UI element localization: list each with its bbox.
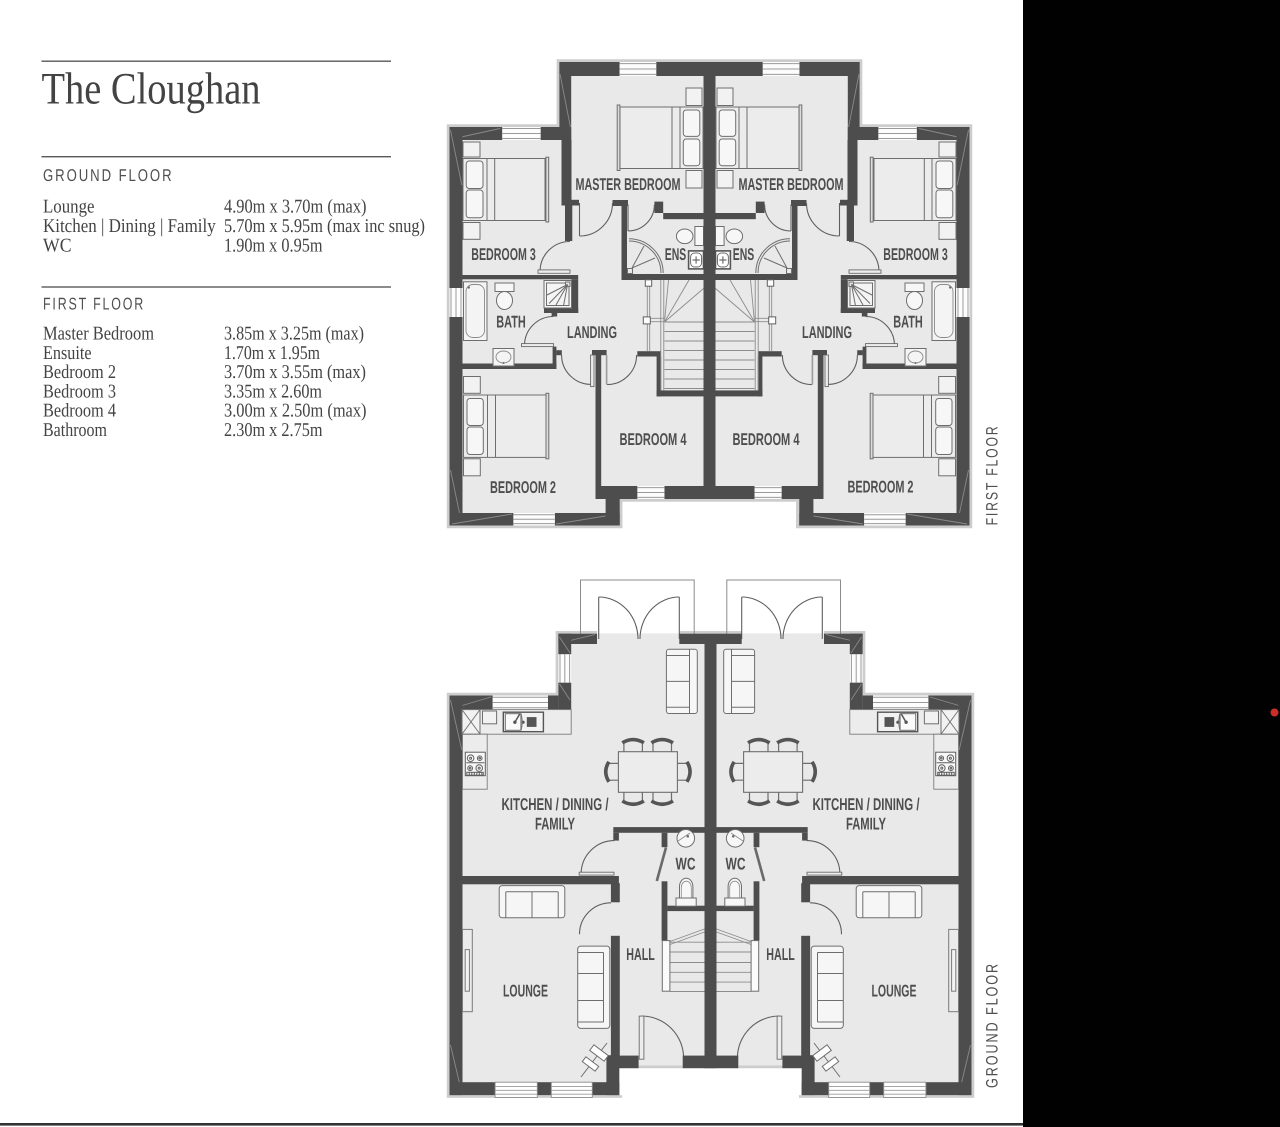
svg-text:GROUND FLOOR: GROUND FLOOR	[984, 962, 1002, 1088]
svg-text:MASTER BEDROOM: MASTER BEDROOM	[739, 175, 844, 194]
svg-text:BEDROOM 3: BEDROOM 3	[883, 245, 948, 264]
svg-text:BATH: BATH	[496, 313, 526, 332]
svg-text:BEDROOM 4: BEDROOM 4	[620, 430, 687, 449]
svg-text:BEDROOM 2: BEDROOM 2	[490, 478, 556, 497]
svg-text:Kitchen | Dining | Family: Kitchen | Dining | Family	[43, 216, 216, 237]
svg-text:FAMILY: FAMILY	[846, 815, 886, 834]
svg-text:2.30m x 2.75m: 2.30m x 2.75m	[224, 420, 323, 441]
svg-text:WC: WC	[676, 855, 696, 874]
svg-text:WC: WC	[726, 855, 746, 874]
svg-text:HALL: HALL	[766, 945, 795, 964]
svg-text:ENS: ENS	[733, 245, 755, 264]
svg-text:1.90m x 0.95m: 1.90m x 0.95m	[224, 236, 323, 257]
svg-text:Bedroom 4: Bedroom 4	[43, 401, 116, 422]
svg-text:1.70m x 1.95m: 1.70m x 1.95m	[224, 343, 320, 364]
svg-text:3.00m x 2.50m (max): 3.00m x 2.50m (max)	[224, 401, 367, 422]
svg-text:BEDROOM 3: BEDROOM 3	[471, 245, 536, 264]
svg-text:BATH: BATH	[893, 313, 923, 332]
svg-text:HALL: HALL	[626, 945, 655, 964]
svg-text:Bathroom: Bathroom	[43, 420, 107, 441]
svg-text:Bedroom 2: Bedroom 2	[43, 362, 116, 383]
svg-text:Ensuite: Ensuite	[43, 343, 92, 364]
svg-text:FAMILY: FAMILY	[535, 815, 575, 834]
svg-text:5.70m x 5.95m (max inc snug): 5.70m x 5.95m (max inc snug)	[224, 216, 425, 237]
svg-text:GROUND FLOOR: GROUND FLOOR	[43, 166, 174, 185]
svg-text:FIRST FLOOR: FIRST FLOOR	[43, 294, 145, 313]
svg-text:MASTER BEDROOM: MASTER BEDROOM	[576, 175, 681, 194]
svg-text:LOUNGE: LOUNGE	[503, 982, 548, 1001]
svg-text:KITCHEN / DINING /: KITCHEN / DINING /	[502, 795, 609, 814]
svg-text:The Cloughan: The Cloughan	[42, 64, 261, 114]
svg-text:BEDROOM 4: BEDROOM 4	[733, 430, 800, 449]
svg-text:WC: WC	[43, 236, 72, 257]
svg-text:Master Bedroom: Master Bedroom	[43, 324, 154, 345]
svg-text:3.85m x 3.25m (max): 3.85m x 3.25m (max)	[224, 324, 364, 345]
svg-text:ENS: ENS	[665, 245, 687, 264]
svg-text:FIRST FLOOR: FIRST FLOOR	[984, 424, 1002, 525]
svg-text:3.35m x 2.60m: 3.35m x 2.60m	[224, 381, 322, 402]
svg-text:3.70m x 3.55m (max): 3.70m x 3.55m (max)	[224, 362, 366, 383]
svg-text:4.90m x 3.70m (max): 4.90m x 3.70m (max)	[224, 197, 367, 218]
svg-text:LANDING: LANDING	[802, 323, 852, 342]
svg-text:Lounge: Lounge	[43, 197, 95, 218]
svg-text:LOUNGE: LOUNGE	[872, 982, 917, 1001]
svg-text:BEDROOM 2: BEDROOM 2	[848, 478, 914, 497]
svg-text:KITCHEN / DINING /: KITCHEN / DINING /	[813, 795, 920, 814]
svg-text:Bedroom 3: Bedroom 3	[43, 381, 116, 402]
svg-text:LANDING: LANDING	[567, 323, 617, 342]
